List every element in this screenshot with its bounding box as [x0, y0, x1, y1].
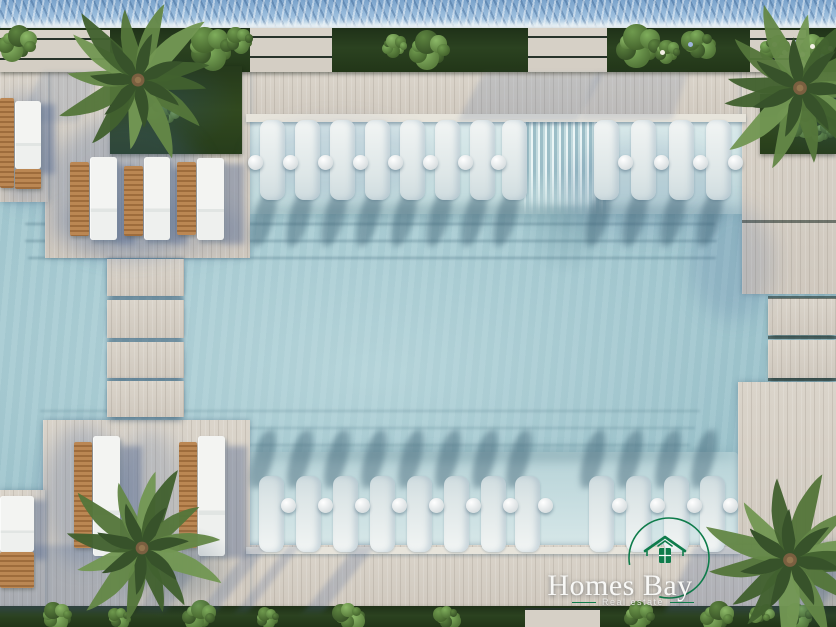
in-pool-lounger [589, 476, 614, 552]
pool-aerial-render: Homes Bay Real estate [0, 0, 836, 627]
bottom-strip-slab [525, 608, 600, 627]
in-pool-lounger [481, 476, 506, 552]
lounger-ball-float [538, 498, 553, 513]
in-pool-lounger [515, 476, 540, 552]
deck-lounger-wood [0, 98, 14, 188]
in-pool-lounger [295, 120, 320, 200]
stepping-plank [107, 259, 184, 296]
palm-tree [42, 448, 242, 627]
lounger-ball-float [388, 155, 403, 170]
in-pool-lounger [365, 120, 390, 200]
in-pool-lounger [296, 476, 321, 552]
in-pool-lounger [400, 120, 425, 200]
in-pool-lounger [435, 120, 460, 200]
in-pool-lounger [669, 120, 694, 200]
deck-seam [768, 378, 836, 381]
in-pool-lounger [333, 476, 358, 552]
lounger-ball-float [466, 498, 481, 513]
lounger-ball-float [248, 155, 263, 170]
lounger-ball-float [318, 155, 333, 170]
lounger-ball-float [392, 498, 407, 513]
lounger-ball-float [458, 155, 473, 170]
lounger-ball-float [503, 498, 518, 513]
planter-slab [250, 28, 332, 72]
in-pool-lounger [594, 120, 619, 200]
lounger-ball-float [429, 498, 444, 513]
stepping-plank [107, 342, 184, 378]
deck-seam [768, 296, 836, 299]
planter-plant [673, 48, 681, 56]
stepping-plank [107, 300, 184, 338]
planter-plant [245, 34, 253, 42]
planter-plant [24, 41, 35, 52]
right-deck-slab [768, 340, 836, 378]
in-pool-lounger [259, 476, 284, 552]
deck-lounger-wood [0, 552, 34, 588]
border-plant [272, 613, 279, 620]
deck-seam [768, 336, 836, 339]
lounger-ball-float [283, 155, 298, 170]
border-plant [352, 607, 361, 616]
planter-slab [528, 28, 607, 72]
lounger-ball-float [281, 498, 296, 513]
lounger-ball-float [423, 155, 438, 170]
in-pool-lounger [631, 120, 656, 200]
stepping-plank [107, 381, 184, 417]
in-pool-lounger [444, 476, 469, 552]
lounger-ball-float [318, 498, 333, 513]
in-pool-lounger [370, 476, 395, 552]
lounger-ball-float [654, 155, 669, 170]
lounger-ball-float [355, 498, 370, 513]
in-pool-lounger [260, 120, 285, 200]
border-plant [646, 612, 655, 621]
palm-tree [36, 0, 240, 182]
planter-plant [437, 44, 449, 56]
right-deck-slab [768, 298, 836, 335]
in-pool-lounger [330, 120, 355, 200]
lounger-ball-float [612, 498, 627, 513]
in-pool-lounger [407, 476, 432, 552]
planter-plant [400, 42, 408, 50]
lounger-ball-float [618, 155, 633, 170]
lounger-ball-float [650, 498, 665, 513]
in-pool-lounger [626, 476, 651, 552]
lounger-ball-float [353, 155, 368, 170]
flower-dot [660, 50, 665, 55]
border-plant [450, 609, 458, 617]
palm-shadow-streak [581, 74, 688, 120]
lounger-ball-float [491, 155, 506, 170]
deck-lounger-cushion [0, 496, 34, 552]
palm-tree [682, 452, 836, 627]
palm-tree [692, 0, 836, 196]
